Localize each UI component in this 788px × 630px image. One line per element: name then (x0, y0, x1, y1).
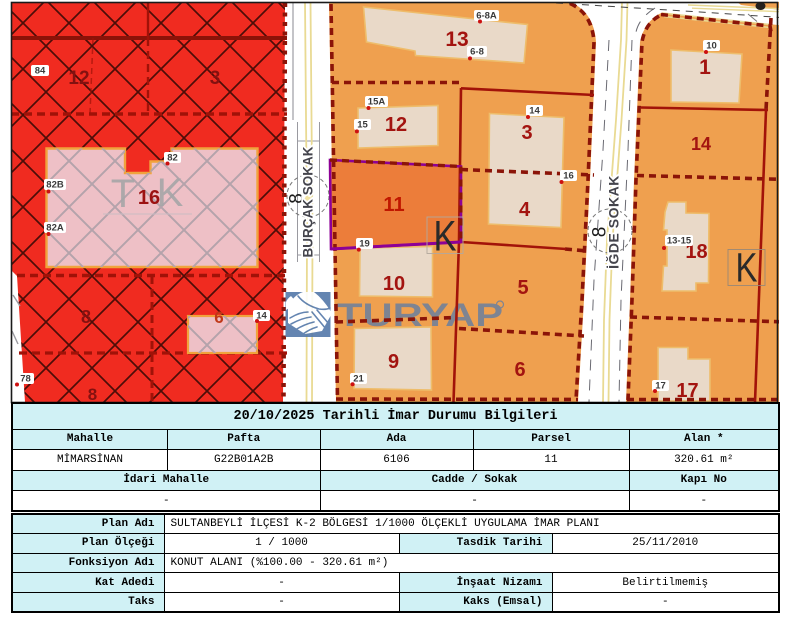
svg-text:BURÇAK SOKAK: BURÇAK SOKAK (301, 146, 316, 257)
svg-text:3: 3 (210, 68, 221, 89)
svg-text:82B: 82B (46, 180, 64, 191)
svg-text:84: 84 (35, 66, 46, 77)
svg-text:14: 14 (529, 106, 540, 117)
svg-text:1: 1 (699, 56, 711, 79)
svg-text:14: 14 (691, 134, 711, 154)
svg-text:12: 12 (385, 114, 407, 136)
svg-text:5: 5 (517, 277, 528, 299)
svg-text:9: 9 (388, 351, 399, 373)
svg-text:10: 10 (383, 273, 405, 295)
svg-text:17: 17 (676, 380, 698, 402)
svg-text:13: 13 (445, 28, 468, 51)
svg-text:8: 8 (81, 307, 91, 327)
svg-text:16: 16 (563, 171, 574, 182)
svg-text:11: 11 (383, 194, 404, 216)
svg-text:12: 12 (68, 68, 89, 89)
svg-text:K: K (434, 213, 457, 261)
svg-text:K: K (736, 245, 758, 291)
svg-text:15A: 15A (368, 97, 386, 108)
svg-text:19: 19 (359, 239, 370, 250)
svg-text:78: 78 (20, 374, 31, 385)
svg-text:82: 82 (167, 153, 178, 164)
svg-text:6: 6 (214, 308, 223, 327)
svg-text:6: 6 (514, 359, 525, 381)
svg-text:T: T (111, 172, 135, 216)
svg-text:82A: 82A (46, 223, 64, 234)
svg-text:6-8: 6-8 (470, 47, 484, 58)
svg-text:3: 3 (521, 122, 532, 144)
svg-text:4: 4 (519, 199, 531, 221)
svg-text:TURYAP: TURYAP (337, 297, 503, 333)
svg-text:10: 10 (706, 41, 717, 52)
svg-text:15: 15 (357, 120, 368, 131)
svg-text:21: 21 (353, 374, 364, 385)
svg-text:13-15: 13-15 (667, 236, 692, 247)
svg-text:16: 16 (138, 187, 160, 209)
svg-text:17: 17 (655, 381, 666, 392)
svg-text:İĞDE SOKAK: İĞDE SOKAK (605, 175, 622, 269)
svg-text:K: K (157, 171, 184, 215)
